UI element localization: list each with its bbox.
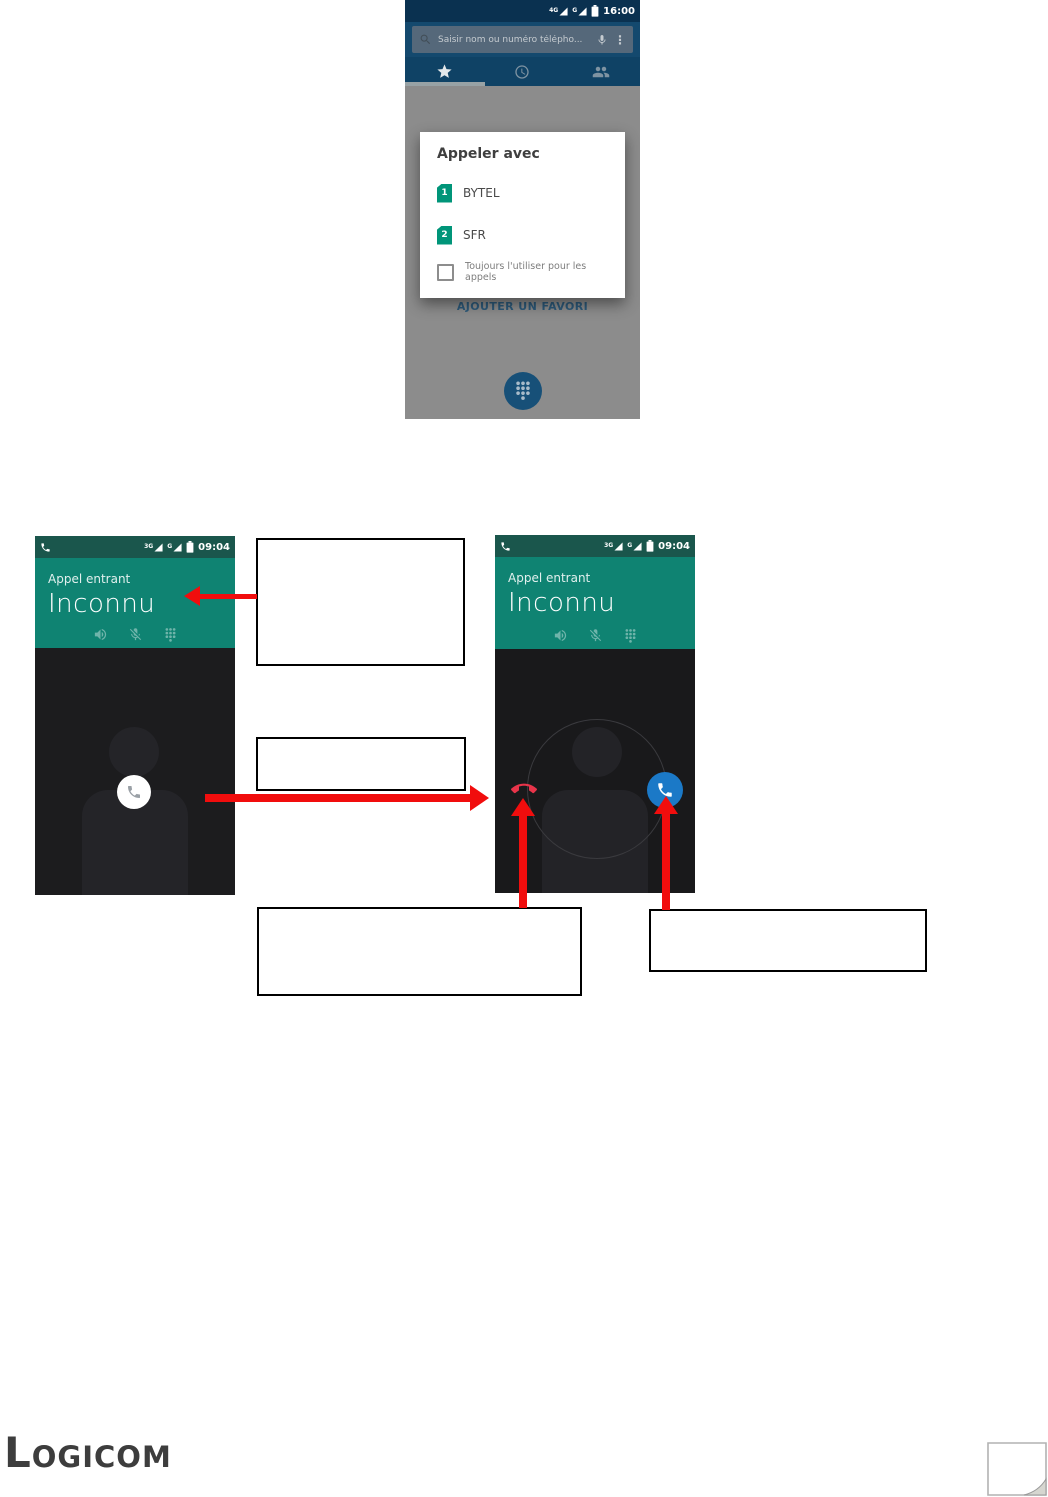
sim1-icon: 1: [437, 184, 452, 203]
search-header: Saisir nom ou numéro télépho... ⋮: [405, 22, 640, 57]
signal-bars-icon: [173, 543, 182, 552]
status-time: 09:04: [198, 542, 230, 553]
always-use-row[interactable]: Toujours l'utiliser pour les appels: [437, 261, 615, 283]
status-bar: 3G G 09:04: [35, 536, 235, 558]
annotation-box-answer: [649, 909, 927, 972]
status-time: 16:00: [603, 6, 635, 17]
phone-status-icon: [40, 542, 51, 553]
people-icon: [592, 63, 610, 81]
dialpad-fab[interactable]: [504, 372, 542, 410]
incoming-call-header: Appel entrant Inconnu: [495, 557, 695, 649]
call-state-label: Appel entrant: [48, 572, 235, 586]
logicom-logo: Logicom: [4, 1431, 172, 1475]
phone-status-icon: [500, 541, 511, 552]
incoming-call-header: Appel entrant Inconnu: [35, 558, 235, 648]
arrow-shaft-to-right-phone: [205, 794, 470, 802]
overflow-menu-icon[interactable]: ⋮: [614, 34, 626, 46]
signal-bars-icon: [154, 543, 163, 552]
sim-option-sfr[interactable]: 2 SFR: [437, 214, 615, 256]
sim2-icon: 2: [437, 226, 452, 245]
status-bar: 3G G 09:04: [495, 535, 695, 557]
battery-icon: [591, 5, 599, 17]
network-type-label: 3G: [604, 543, 613, 549]
annotation-box-incoming-header: [256, 538, 465, 666]
star-icon: [436, 63, 453, 80]
search-icon: [419, 33, 432, 46]
signal-3g-icon: 3G: [604, 542, 623, 551]
annotation-box-swipe: [256, 737, 466, 791]
tab-bar: [405, 57, 640, 86]
signal-g-icon: G: [167, 543, 182, 552]
answer-swipe-circle[interactable]: [527, 719, 667, 859]
sim-option-label: SFR: [463, 228, 486, 242]
mute-mic-icon[interactable]: [588, 628, 603, 643]
signal-bars-icon: [559, 7, 568, 16]
network-type-label: 3G: [144, 544, 153, 550]
caller-name: Inconnu: [508, 588, 695, 618]
avatar: [109, 727, 159, 777]
signal-bars-icon: [578, 7, 587, 16]
status-bar: 4G G 16:00: [405, 0, 640, 22]
manual-page: 4G G 16:00 Saisir nom ou numéro télépho.…: [0, 0, 1048, 1497]
checkbox[interactable]: [437, 264, 454, 281]
signal-3g-icon: 3G: [144, 543, 163, 552]
sim-option-label: BYTEL: [463, 186, 500, 200]
status-time: 09:04: [658, 541, 690, 552]
page-curl-icon[interactable]: [986, 1441, 1048, 1497]
arrow-shaft-to-decline: [519, 814, 527, 908]
dialpad-icon: [513, 380, 533, 403]
network-type-label: G: [167, 544, 172, 550]
search-placeholder: Saisir nom ou numéro télépho...: [438, 35, 590, 45]
arrow-shaft-to-header: [198, 594, 257, 599]
network-type-label: G: [572, 8, 577, 14]
call-state-label: Appel entrant: [508, 571, 695, 585]
incoming-call-screenshot-left: 3G G 09:04 Appel entrant Inconnu: [35, 536, 235, 895]
signal-g-icon: G: [572, 7, 587, 16]
battery-icon: [186, 541, 194, 553]
dialpad-icon[interactable]: [623, 628, 638, 645]
signal-bars-icon: [633, 542, 642, 551]
sim-option-bytel[interactable]: 1 BYTEL: [437, 172, 615, 214]
incoming-call-body: [35, 648, 235, 895]
dialog-title: Appeler avec: [437, 146, 615, 162]
add-favorite-button[interactable]: AJOUTER UN FAVORI: [405, 300, 640, 313]
network-type-label: 4G: [549, 8, 558, 14]
in-call-icon-row: [35, 627, 235, 644]
speaker-icon[interactable]: [93, 627, 108, 642]
arrow-head-to-header: [184, 586, 200, 606]
signal-bars-icon: [614, 542, 623, 551]
in-call-icon-row: [495, 628, 695, 645]
phone-icon: [126, 784, 142, 800]
signal-g-icon: G: [627, 542, 642, 551]
checkbox-label: Toujours l'utiliser pour les appels: [465, 261, 615, 283]
battery-icon: [646, 540, 654, 552]
arrow-shaft-to-answer: [662, 812, 670, 910]
mute-mic-icon[interactable]: [128, 627, 143, 642]
incoming-call-button[interactable]: [117, 775, 151, 809]
annotation-box-decline: [257, 907, 582, 996]
arrow-head-to-right-phone: [470, 785, 489, 811]
search-input[interactable]: Saisir nom ou numéro télépho... ⋮: [412, 26, 633, 53]
speaker-icon[interactable]: [553, 628, 568, 643]
tab-history[interactable]: [483, 57, 561, 86]
signal-4g-icon: 4G: [549, 7, 568, 16]
dialpad-icon[interactable]: [163, 627, 178, 644]
clock-icon: [514, 64, 530, 80]
tab-contacts[interactable]: [562, 57, 640, 86]
dialer-screenshot: 4G G 16:00 Saisir nom ou numéro télépho.…: [405, 0, 640, 419]
mic-icon[interactable]: [596, 34, 608, 46]
network-type-label: G: [627, 543, 632, 549]
call-with-dialog: Appeler avec 1 BYTEL 2 SFR Toujours l'ut…: [420, 132, 625, 298]
